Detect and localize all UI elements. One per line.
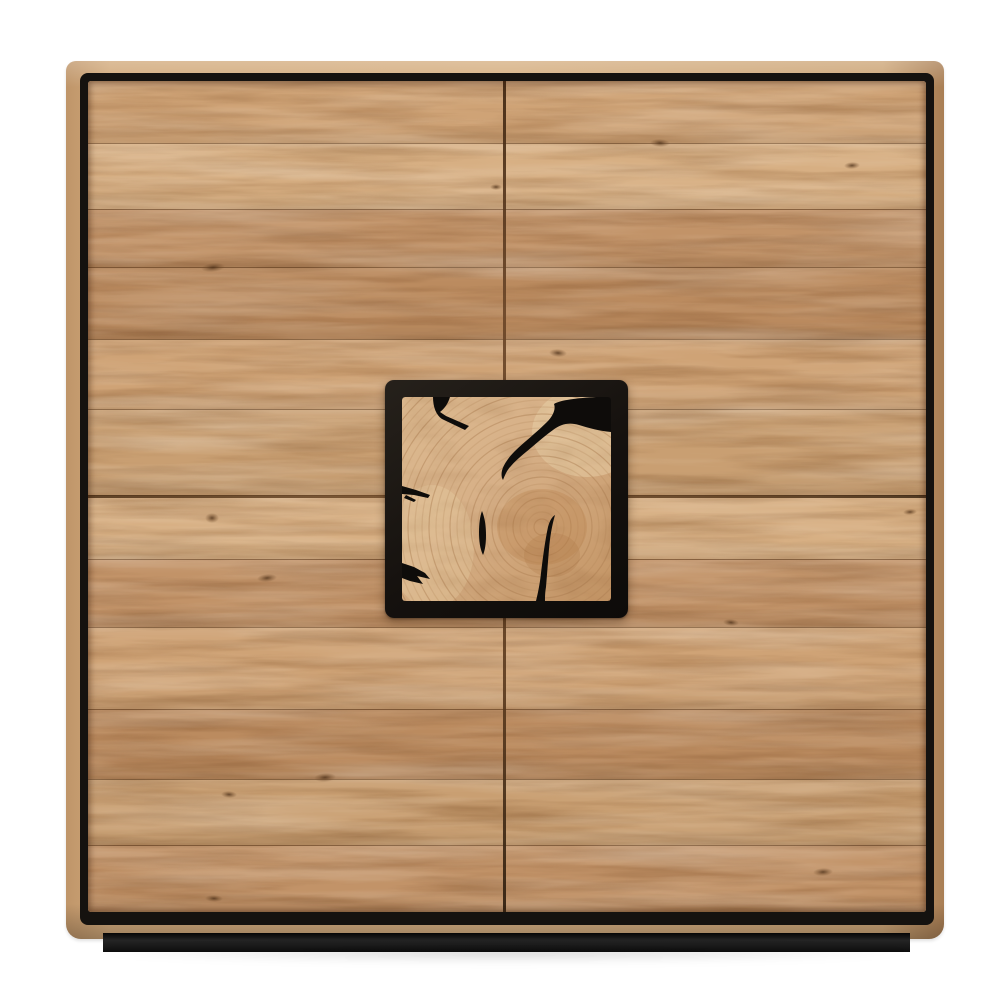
- wood-plank: [88, 845, 926, 912]
- floor-shadow: [96, 947, 912, 963]
- product-photo: [0, 0, 1000, 1000]
- black-trim-frame: [80, 73, 934, 925]
- wood-plank: [88, 627, 926, 709]
- wood-plank: [88, 81, 926, 143]
- end-grain-panel: [402, 397, 611, 601]
- wood-plank: [88, 143, 926, 209]
- wood-plank: [88, 209, 926, 267]
- wood-plank: [88, 267, 926, 339]
- doors-area: [88, 81, 926, 912]
- center-panel-frame: [385, 380, 628, 618]
- wood-plank: [88, 709, 926, 779]
- cabinet-body: [66, 61, 944, 939]
- wood-plank: [88, 779, 926, 845]
